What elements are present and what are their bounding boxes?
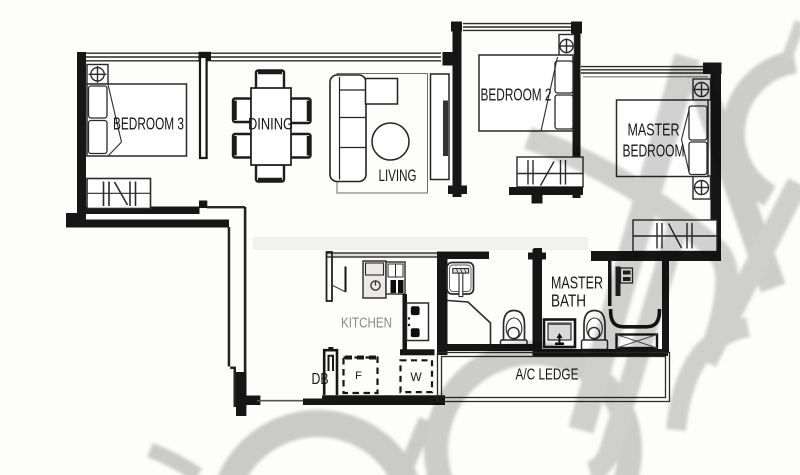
svg-text:F: F <box>355 370 362 382</box>
svg-text:DB: DB <box>312 371 329 388</box>
svg-text:DINING: DINING <box>248 115 293 134</box>
svg-text:BATH: BATH <box>551 291 586 311</box>
svg-text:LIVING: LIVING <box>379 166 417 185</box>
svg-text:MASTER: MASTER <box>551 273 603 293</box>
svg-text:BEDROOM 2: BEDROOM 2 <box>481 85 552 105</box>
svg-text:W: W <box>410 370 422 384</box>
svg-text:BEDROOM 3: BEDROOM 3 <box>113 114 184 134</box>
svg-text:KITCHEN: KITCHEN <box>341 315 392 332</box>
